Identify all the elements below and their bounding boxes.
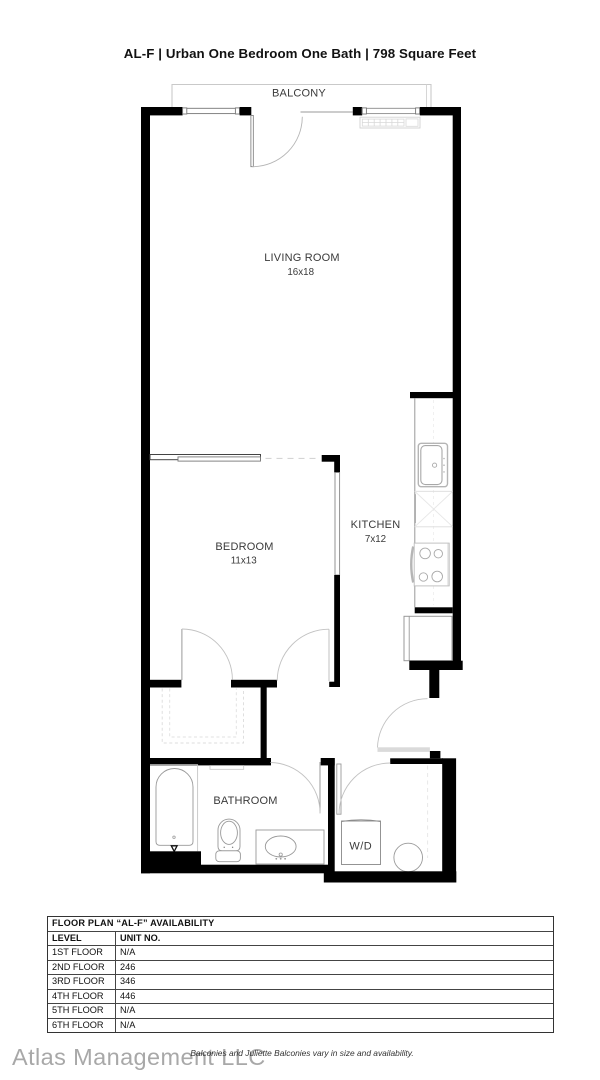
svg-text:BALCONY: BALCONY [272,88,326,100]
svg-text:11x13: 11x13 [231,556,258,567]
svg-text:BEDROOM: BEDROOM [215,541,273,553]
svg-text:KITCHEN: KITCHEN [351,519,401,531]
svg-text:BATHROOM: BATHROOM [213,795,277,807]
svg-text:LIVING ROOM: LIVING ROOM [264,252,340,264]
svg-text:16x18: 16x18 [287,267,314,278]
svg-text:W/D: W/D [349,840,372,852]
svg-text:7x12: 7x12 [365,534,386,545]
